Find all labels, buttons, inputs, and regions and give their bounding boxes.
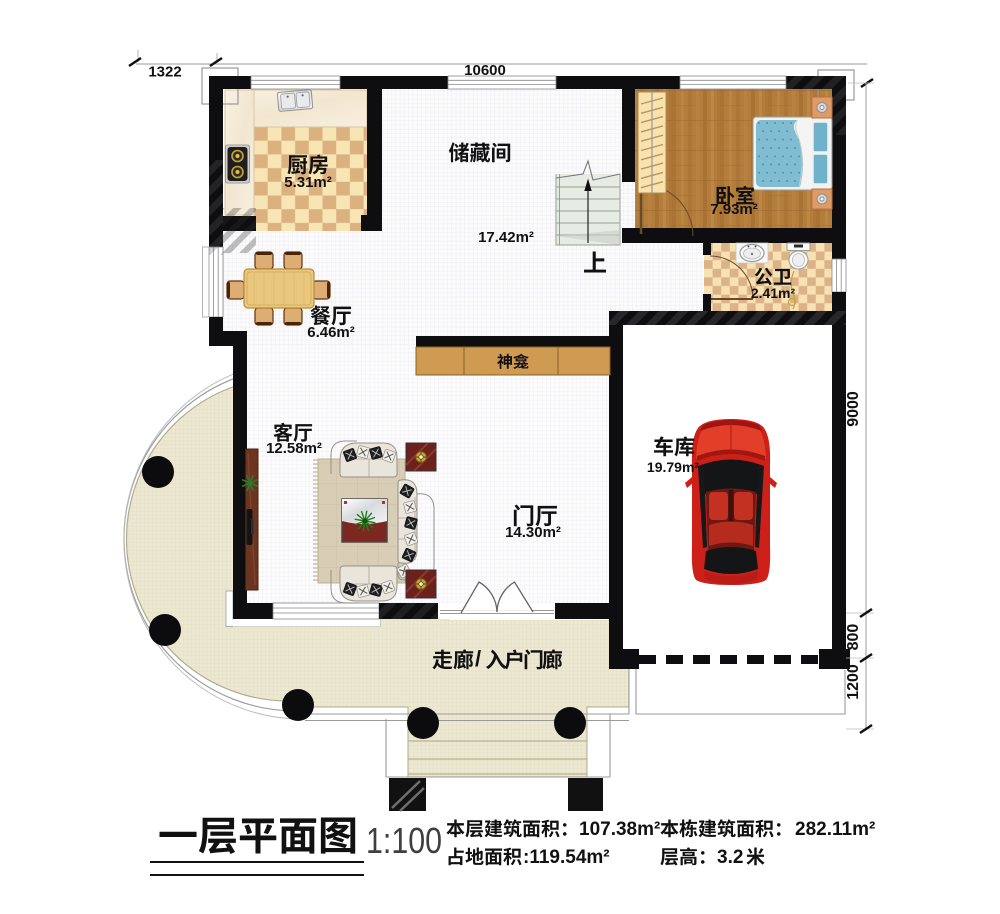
- svg-text:9000: 9000: [845, 391, 862, 427]
- svg-text:12.58m²: 12.58m²: [266, 440, 322, 457]
- svg-text:7.93m²: 7.93m²: [710, 201, 758, 218]
- svg-text:17.42m²: 17.42m²: [478, 229, 534, 246]
- svg-text:1200: 1200: [845, 664, 862, 700]
- svg-text:14.30m²: 14.30m²: [505, 524, 561, 541]
- svg-text:5.31m²: 5.31m²: [284, 174, 332, 191]
- svg-text:2.41m²: 2.41m²: [751, 285, 796, 301]
- svg-text:6.46m²: 6.46m²: [307, 324, 355, 341]
- svg-text:107.38m²: 107.38m²: [579, 819, 660, 840]
- svg-text:1322: 1322: [148, 64, 181, 81]
- svg-text:1:100: 1:100: [366, 820, 442, 861]
- svg-text:3.2: 3.2: [717, 847, 743, 868]
- svg-text::119.54m²: :119.54m²: [523, 847, 610, 868]
- svg-text:19.79m²: 19.79m²: [647, 459, 699, 475]
- svg-text:282.11m²: 282.11m²: [795, 819, 875, 840]
- svg-text:10600: 10600: [464, 62, 506, 79]
- svg-text:800: 800: [845, 624, 862, 651]
- svg-text:/: /: [475, 646, 481, 671]
